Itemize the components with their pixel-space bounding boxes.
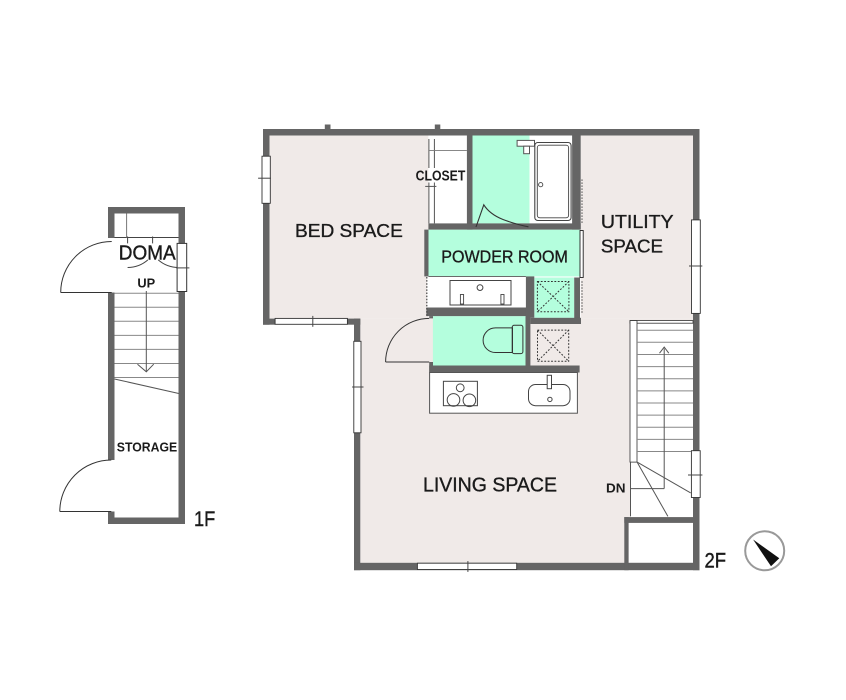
svg-text:CLOSET: CLOSET	[416, 168, 466, 184]
svg-text:2F: 2F	[705, 550, 727, 573]
svg-text:DOMA: DOMA	[119, 242, 176, 265]
svg-text:LIVING SPACE: LIVING SPACE	[423, 474, 557, 496]
svg-text:1F: 1F	[194, 508, 215, 531]
svg-text:SPACE: SPACE	[601, 235, 663, 256]
svg-text:STORAGE: STORAGE	[117, 440, 177, 454]
svg-text:BED SPACE: BED SPACE	[295, 220, 403, 241]
svg-text:DN: DN	[606, 481, 626, 496]
svg-text:POWDER ROOM: POWDER ROOM	[441, 247, 568, 267]
svg-text:UP: UP	[137, 276, 155, 291]
svg-text:UTILITY: UTILITY	[601, 211, 674, 232]
